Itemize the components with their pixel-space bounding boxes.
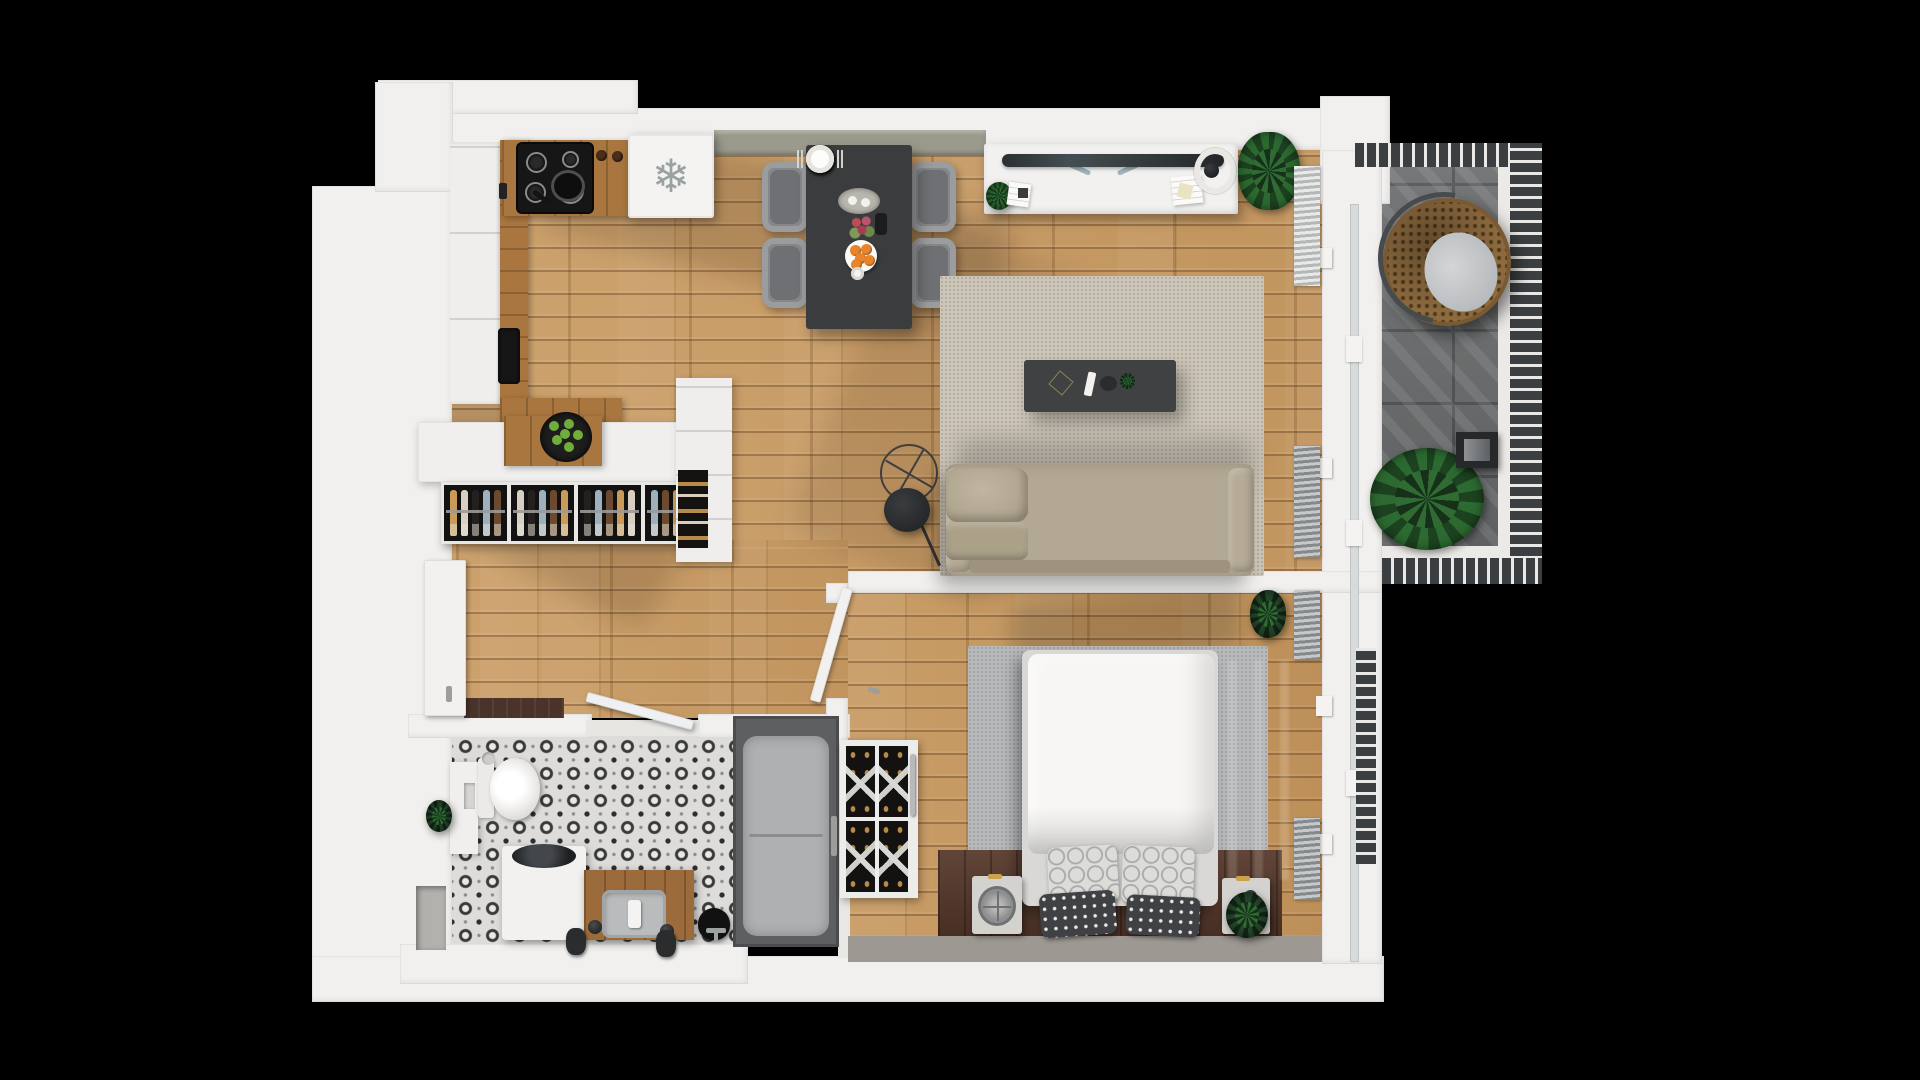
xcell xyxy=(846,821,875,892)
lamp-sphere xyxy=(1204,163,1219,178)
window-mullion xyxy=(1346,336,1362,362)
espresso-cup xyxy=(851,267,864,280)
duvet-fold xyxy=(1028,786,1214,854)
kitchen-sink xyxy=(498,328,520,384)
xcell xyxy=(846,746,875,817)
mini-plant xyxy=(1120,373,1135,389)
balcony-railing-right xyxy=(1510,143,1542,580)
wire-decor xyxy=(1048,370,1073,395)
shelf-wine-compartment xyxy=(678,470,708,548)
kitchen-faucet xyxy=(499,183,507,199)
nightstand-plant xyxy=(1226,892,1268,938)
monitor xyxy=(1002,154,1224,167)
rack-section xyxy=(578,485,641,541)
shower-door-handle xyxy=(831,816,837,856)
coffee-table xyxy=(1024,360,1176,412)
frying-pan xyxy=(551,170,585,202)
washer-drum xyxy=(512,844,576,868)
wine-bottle xyxy=(875,213,887,235)
toilet-bowl xyxy=(490,758,540,820)
blind xyxy=(1294,590,1320,660)
entry-door-handle xyxy=(446,686,452,702)
island-wine-rack xyxy=(441,482,711,544)
palm-plant xyxy=(1238,132,1300,210)
lime xyxy=(564,419,574,429)
window-handle-tab xyxy=(1316,696,1332,716)
blind xyxy=(1294,446,1320,558)
bathroom-plant xyxy=(426,800,452,832)
rack-section xyxy=(444,485,507,541)
lime xyxy=(560,429,570,439)
bedroom-wine-cabinet-grid xyxy=(846,746,908,892)
bedroom-corner-plant xyxy=(1250,590,1286,638)
tv-remote xyxy=(1084,371,1097,396)
window-mullion xyxy=(1346,520,1362,546)
entry-door xyxy=(424,560,466,716)
apartment-floor-plan: ❄ xyxy=(0,0,1920,1080)
stove-knob xyxy=(596,150,607,161)
juliet-balcony-railing xyxy=(1356,648,1376,864)
bowl-of-limes xyxy=(540,412,592,462)
lime xyxy=(564,442,574,452)
flower-bouquet xyxy=(848,212,876,242)
wall-left-upper xyxy=(375,82,453,192)
shower-drain xyxy=(749,834,823,837)
rack-rail xyxy=(580,510,639,513)
bedroom-floor-strip xyxy=(848,936,1322,962)
blind xyxy=(1294,166,1320,286)
blind xyxy=(1294,818,1320,900)
scush xyxy=(946,522,1028,560)
snowflake-icon: ❄ xyxy=(628,134,714,218)
sofa xyxy=(946,464,1254,576)
serving-platter xyxy=(838,188,880,214)
xcell xyxy=(879,746,908,817)
bed-pillow-dark xyxy=(1125,894,1201,938)
orange xyxy=(864,255,875,266)
burner xyxy=(526,152,547,173)
chair xyxy=(762,162,808,232)
place-setting xyxy=(806,145,834,173)
wine-cabinet-handle xyxy=(910,754,915,816)
fan-handle xyxy=(988,874,1002,879)
bcush xyxy=(946,468,1028,522)
rack-rail xyxy=(446,510,505,513)
xcell xyxy=(879,821,908,892)
chair xyxy=(762,238,808,308)
platter-item xyxy=(861,198,870,207)
toilet-flush-button xyxy=(482,752,495,765)
chair xyxy=(910,162,956,232)
desk-accessory xyxy=(1018,188,1028,198)
lime xyxy=(549,421,559,431)
floor-lamp-shade xyxy=(884,488,930,532)
floor-faucet-stem xyxy=(714,928,718,942)
wall-niche xyxy=(416,886,446,950)
waste-bin xyxy=(656,930,676,957)
nightstand-handle xyxy=(1236,876,1250,881)
dining-table xyxy=(806,145,912,329)
stove-knob xyxy=(612,151,623,162)
vanity-basin-inset xyxy=(464,783,475,809)
fan-grill xyxy=(978,886,1016,926)
rack-section xyxy=(511,485,574,541)
sofa-armrest xyxy=(1228,468,1254,572)
soap-dispenser xyxy=(628,900,641,928)
rack-rail xyxy=(513,510,572,513)
balcony-railing-bottom xyxy=(1382,558,1542,584)
lime xyxy=(573,430,583,440)
burner xyxy=(562,151,579,168)
entry-mat xyxy=(464,698,564,718)
waste-bin xyxy=(566,928,586,955)
kitchen-cabinet-run xyxy=(450,142,502,404)
sofa-base xyxy=(970,560,1230,573)
decor-bowl xyxy=(1100,376,1117,391)
vanity-knob xyxy=(588,920,602,934)
platter-item xyxy=(848,196,857,205)
bed-pillow-dark xyxy=(1039,889,1118,938)
refrigerator: ❄ xyxy=(628,134,714,218)
bedroom-wine-cabinet xyxy=(840,740,918,898)
balcony-lantern-speaker xyxy=(1456,432,1498,468)
